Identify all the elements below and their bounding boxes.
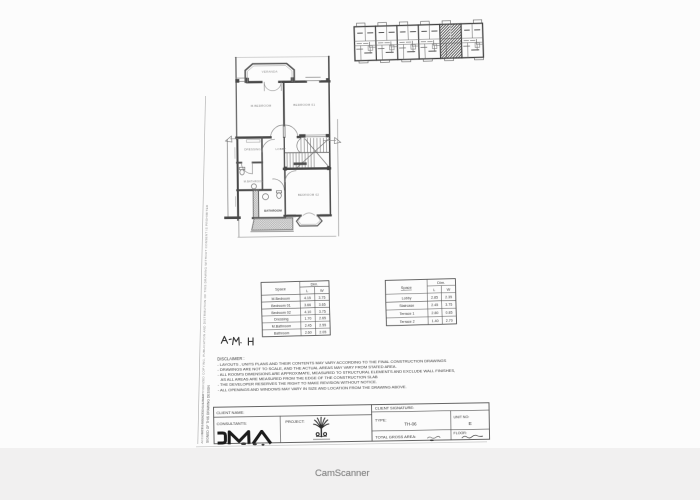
svg-text:CONSULTANTS:: CONSULTANTS:: [217, 421, 247, 426]
svg-text:2.60: 2.60: [305, 331, 312, 335]
svg-text:FLOOR:: FLOOR:: [453, 431, 466, 435]
svg-text:2.70: 2.70: [446, 318, 453, 322]
svg-text:3.75: 3.75: [318, 296, 325, 300]
svg-text:CLIENT NAME:: CLIENT NAME:: [216, 410, 244, 415]
svg-text:2.65: 2.65: [319, 316, 326, 320]
svg-text:Lobby: Lobby: [402, 296, 412, 300]
svg-text:SIGNED OF THIS DRAWING DESIGN: SIGNED OF THIS DRAWING DESIGN: [206, 385, 211, 443]
svg-text:TOTAL GROSS AREA:: TOTAL GROSS AREA:: [375, 434, 416, 440]
svg-text:3.65: 3.65: [319, 303, 326, 307]
svg-text:M.Bathroom: M.Bathroom: [272, 324, 292, 329]
svg-text:1.40: 1.40: [432, 319, 439, 323]
svg-text:3.66: 3.66: [304, 303, 311, 307]
svg-text:Bathroom: Bathroom: [274, 331, 290, 335]
svg-text:Space: Space: [401, 286, 412, 290]
svg-text:2.35: 2.35: [445, 295, 452, 299]
svg-text:VERANDA: VERANDA: [262, 70, 278, 74]
svg-text:2.05: 2.05: [319, 330, 326, 334]
svg-text:2.80: 2.80: [431, 311, 438, 315]
svg-text:Terrace 1: Terrace 1: [399, 312, 414, 316]
svg-text:E: E: [469, 421, 472, 427]
svg-text:Dim.: Dim.: [437, 281, 445, 285]
svg-text:2.55: 2.55: [319, 323, 326, 327]
svg-text:4.10: 4.10: [304, 310, 311, 314]
svg-text:TYPE:: TYPE:: [375, 417, 387, 422]
svg-text:Space: Space: [275, 287, 286, 291]
svg-text:Staircase: Staircase: [399, 304, 414, 308]
svg-text:L: L: [306, 289, 308, 293]
svg-text:UNIT NO:: UNIT NO:: [453, 415, 469, 419]
svg-text:TH-06: TH-06: [404, 421, 417, 426]
svg-text:2.45: 2.45: [431, 303, 438, 307]
svg-text:Bedroom 02: Bedroom 02: [271, 310, 291, 315]
svg-text:0.85: 0.85: [446, 311, 453, 315]
svg-text:M.BATHROOM: M.BATHROOM: [244, 179, 265, 183]
svg-text:2.45: 2.45: [305, 324, 312, 328]
svg-text:LOBBY: LOBBY: [276, 147, 287, 151]
svg-text:M.Bedroom: M.Bedroom: [271, 297, 290, 301]
svg-text:Terrace 2: Terrace 2: [400, 319, 415, 323]
svg-text:PROJECT:: PROJECT:: [285, 419, 304, 424]
svg-text:1.70: 1.70: [304, 317, 311, 321]
svg-text:3.75: 3.75: [445, 303, 452, 307]
svg-text:4.15: 4.15: [304, 296, 311, 300]
svg-text:W: W: [320, 289, 324, 293]
svg-text:DRESSING: DRESSING: [244, 147, 261, 151]
svg-text:ACCURATE | AMENDED CHECKED: ACCURATE | AMENDED CHECKED: [200, 394, 205, 444]
svg-text:2.85: 2.85: [431, 295, 438, 299]
svg-text:Dressing: Dressing: [274, 317, 288, 321]
svg-text:L: L: [433, 288, 435, 292]
svg-text:3.75: 3.75: [319, 310, 326, 314]
svg-text:BATHROOM: BATHROOM: [264, 209, 282, 213]
svg-text:BEDROOM 02: BEDROOM 02: [298, 193, 319, 197]
svg-text:CLIENT SIGNATURE:: CLIENT SIGNATURE:: [375, 405, 414, 411]
svg-text:Bedroom 01: Bedroom 01: [271, 304, 291, 309]
svg-text:W: W: [447, 288, 451, 292]
svg-text:Dim.: Dim.: [310, 282, 318, 286]
svg-text:M.BEDROOM: M.BEDROOM: [251, 103, 272, 107]
svg-text:BEDROOM 01: BEDROOM 01: [293, 103, 315, 107]
